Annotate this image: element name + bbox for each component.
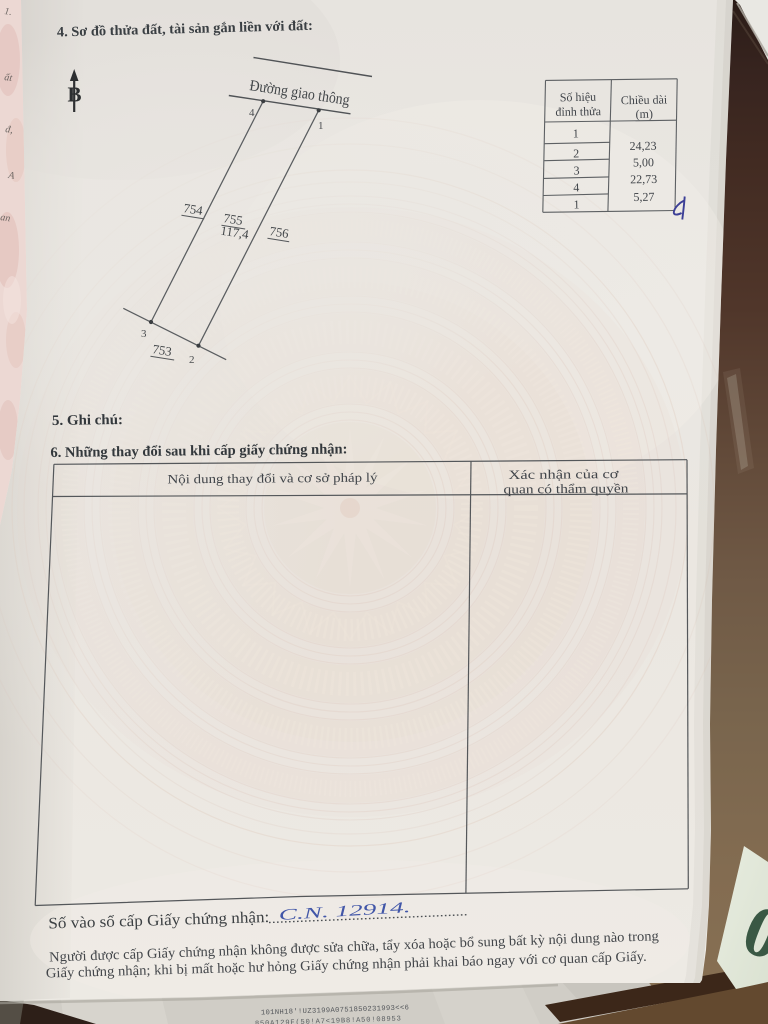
svg-text:3: 3 bbox=[573, 163, 579, 177]
svg-text:Số hiệu: Số hiệu bbox=[560, 90, 597, 105]
svg-text:Xác nhận của cơ: Xác nhận của cơ bbox=[508, 467, 618, 482]
svg-text:2: 2 bbox=[573, 146, 579, 160]
svg-text:753: 753 bbox=[152, 342, 173, 359]
svg-text:1: 1 bbox=[573, 126, 579, 140]
svg-text:4: 4 bbox=[249, 107, 255, 119]
svg-text:1.: 1. bbox=[4, 6, 13, 18]
svg-text:đỉnh thửa: đỉnh thửa bbox=[555, 104, 601, 119]
svg-text:1: 1 bbox=[318, 120, 324, 132]
svg-text:3: 3 bbox=[141, 328, 147, 340]
svg-text:đ,: đ, bbox=[5, 124, 14, 136]
svg-text:Chiều dài: Chiều dài bbox=[621, 92, 668, 107]
svg-text:4: 4 bbox=[573, 180, 579, 194]
svg-text:2: 2 bbox=[189, 354, 195, 366]
svg-text:5,00: 5,00 bbox=[633, 155, 654, 169]
svg-text:24,23: 24,23 bbox=[629, 139, 656, 153]
svg-text:22,73: 22,73 bbox=[630, 172, 657, 186]
svg-text:5. Ghi chú:: 5. Ghi chú: bbox=[52, 412, 123, 429]
svg-text:(m): (m) bbox=[635, 107, 653, 121]
svg-text:Nội dung thay đổi và cơ sở phá: Nội dung thay đổi và cơ sở pháp lý bbox=[167, 471, 378, 487]
svg-text:B: B bbox=[68, 83, 82, 107]
svg-text:5,27: 5,27 bbox=[633, 190, 654, 204]
svg-text:an: an bbox=[0, 212, 11, 224]
svg-text:quan có thẩm quyền: quan có thẩm quyền bbox=[503, 481, 629, 496]
svg-text:1: 1 bbox=[573, 197, 579, 211]
